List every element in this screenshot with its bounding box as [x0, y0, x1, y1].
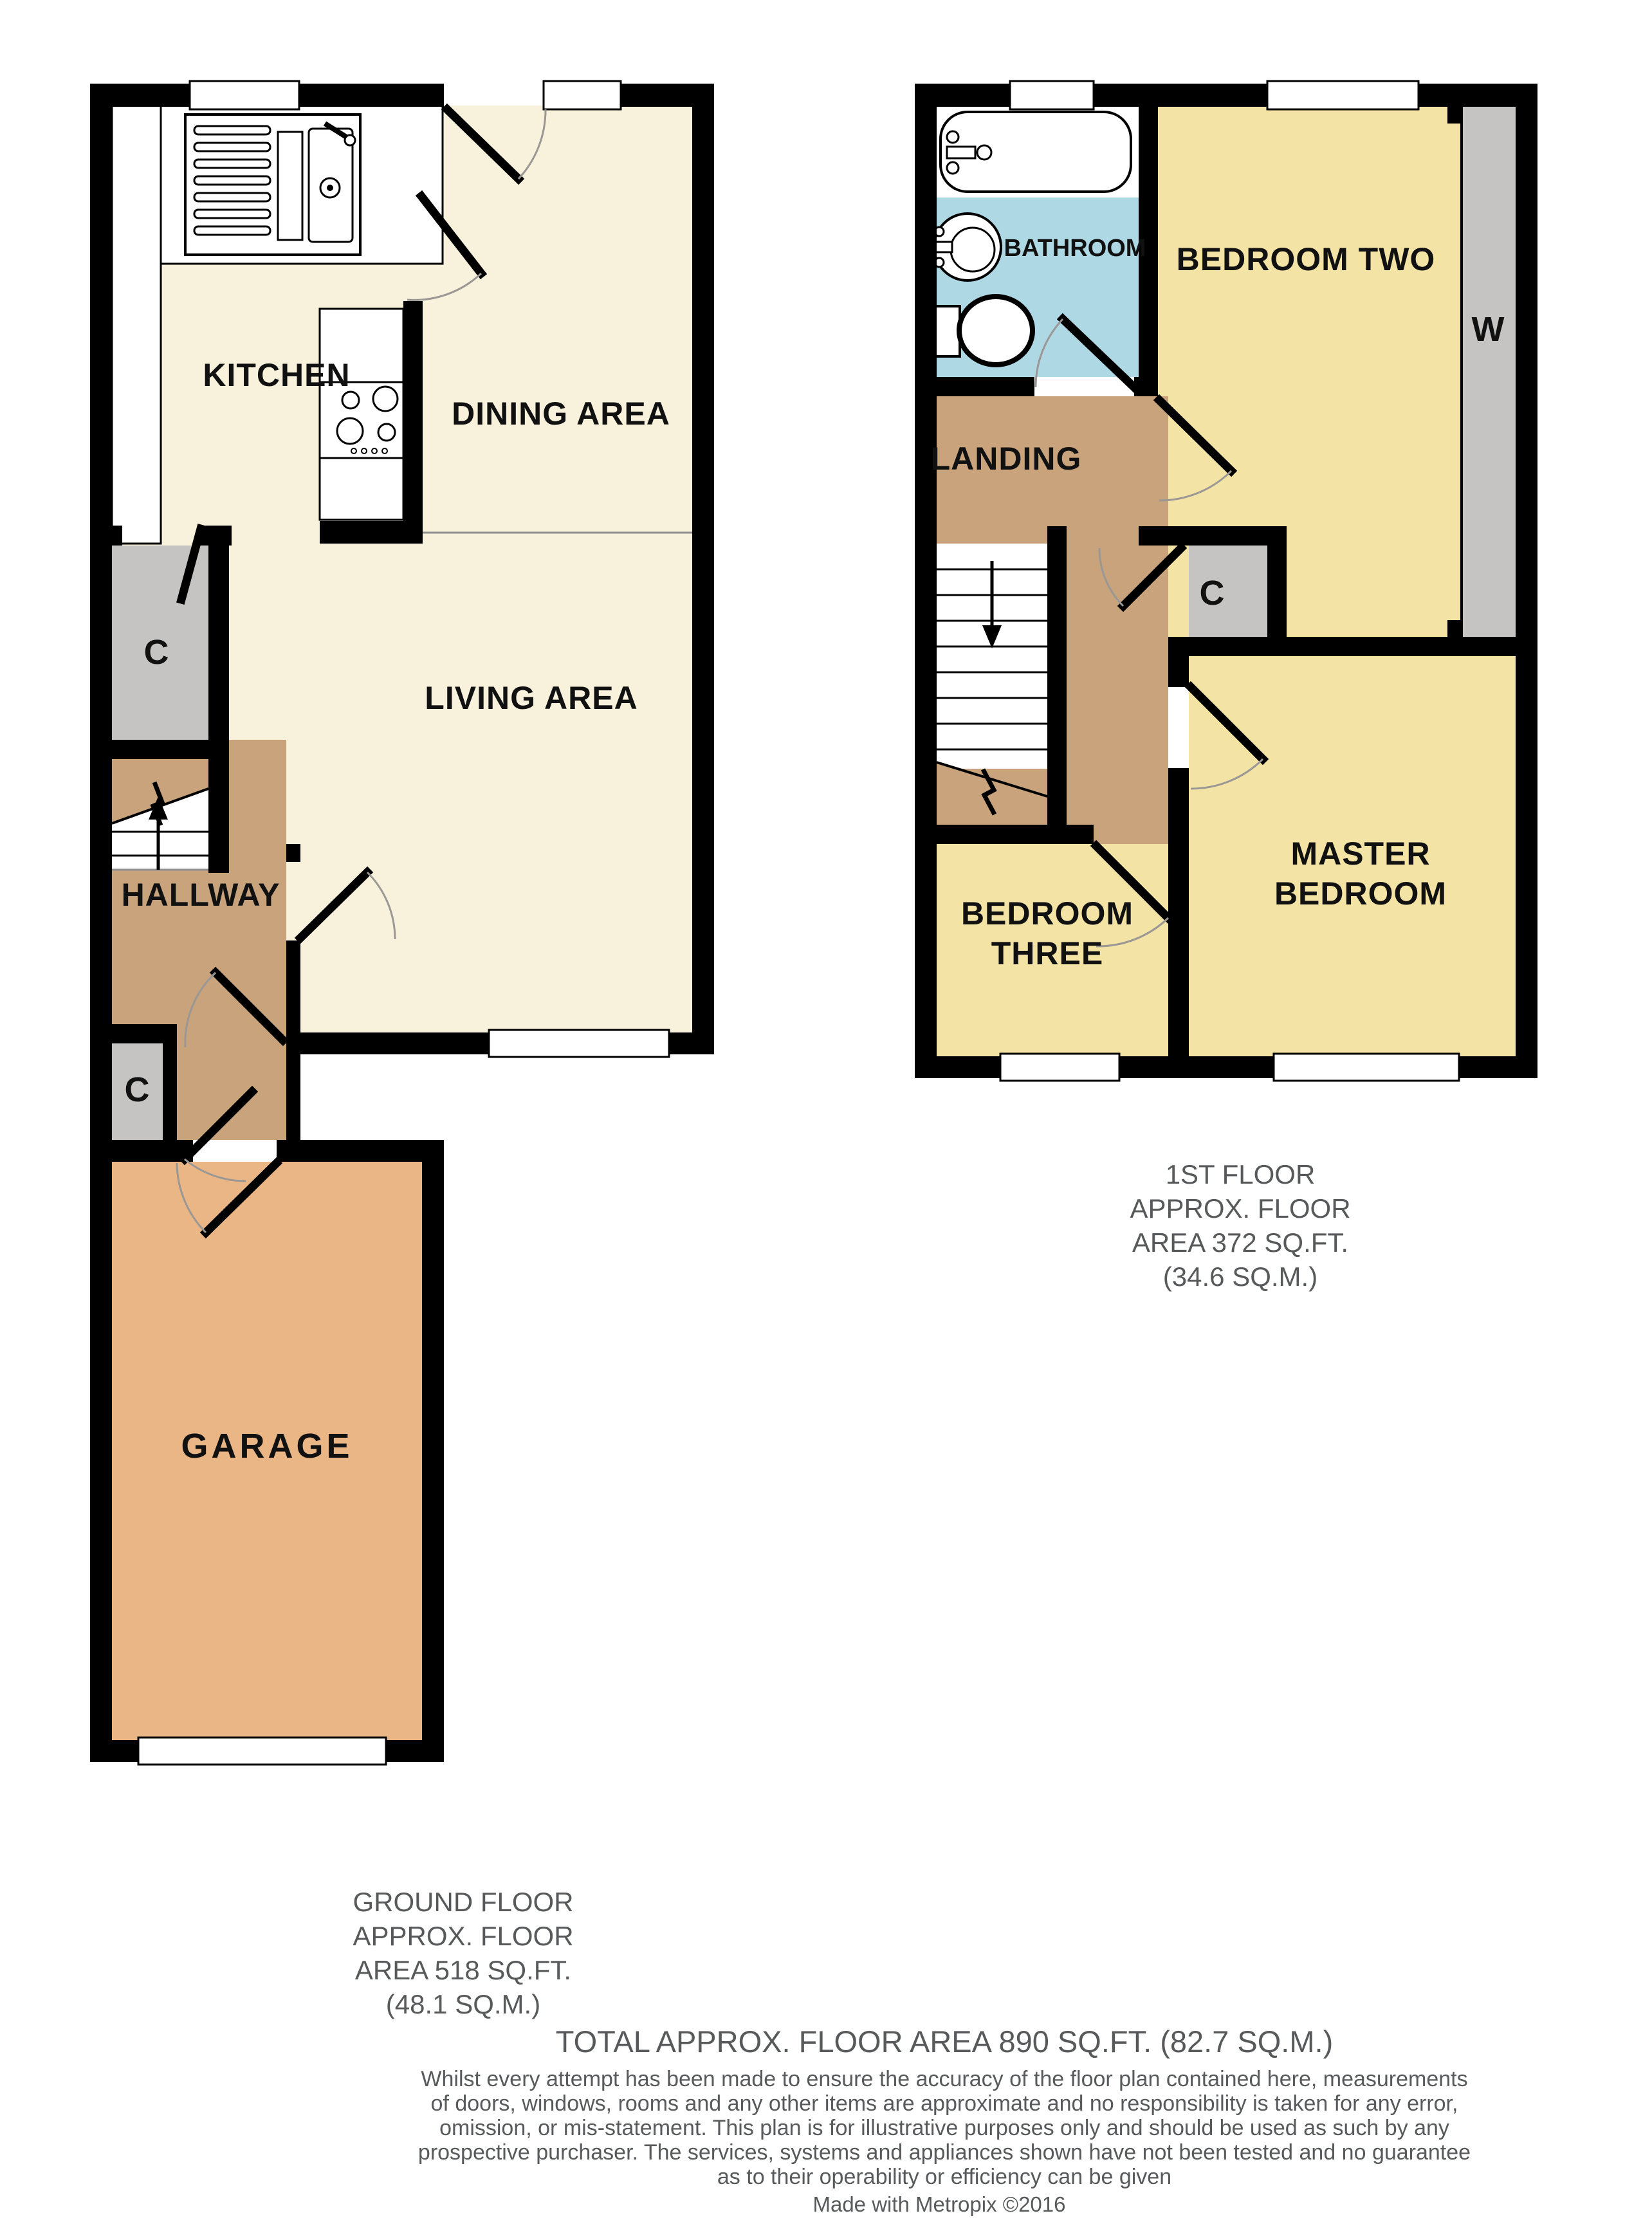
kitchen-label: KITCHEN — [203, 357, 350, 393]
disclaimer-line5: as to their operability or efficiency ca… — [717, 2165, 1171, 2189]
closet-first-label: C — [1200, 574, 1225, 612]
first-floor-caption-line3: AREA 372 SQ.FT. — [1132, 1227, 1348, 1258]
dining-area-label: DINING AREA — [452, 396, 670, 432]
kitchen-sink-icon — [185, 115, 360, 255]
master-bedroom-window — [1274, 1054, 1459, 1081]
bathroom-label: BATHROOM — [1004, 235, 1146, 262]
living-window — [489, 1030, 669, 1057]
first-floor-caption-line2: APPROX. FLOOR — [1130, 1193, 1350, 1224]
bedroom-two-label: BEDROOM TWO — [1177, 241, 1436, 277]
dining-window — [544, 81, 621, 109]
ground-floor-caption-line2: APPROX. FLOOR — [353, 1921, 573, 1951]
toilet-icon — [932, 297, 1032, 365]
first-floor-caption: 1ST FLOOR APPROX. FLOOR AREA 372 SQ.FT. … — [1130, 1159, 1350, 1292]
total-area-line: TOTAL APPROX. FLOOR AREA 890 SQ.FT. (82.… — [556, 2024, 1333, 2059]
hallway-label: HALLWAY — [122, 877, 280, 913]
bathroom-window — [1010, 81, 1094, 109]
ground-floor-caption-line4: (48.1 SQ.M.) — [386, 1989, 540, 2019]
garage-label: GARAGE — [181, 1427, 353, 1465]
closet-lower-label: C — [125, 1070, 150, 1109]
bedroom-two-window — [1267, 81, 1418, 109]
metropix-credit: Made with Metropix ©2016 — [812, 2192, 1065, 2216]
kitchen-window — [190, 81, 299, 109]
disclaimer-line3: omission, or mis-statement. This plan is… — [439, 2116, 1449, 2140]
hob-icon — [320, 382, 403, 458]
landing-label: LANDING — [931, 441, 1082, 477]
disclaimer-line2: of doors, windows, rooms and any other i… — [431, 2091, 1458, 2116]
sink-drainer — [194, 126, 270, 235]
disclaimer-line4: prospective purchaser. The services, sys… — [418, 2140, 1471, 2165]
first-floor-caption-line4: (34.6 SQ.M.) — [1163, 1261, 1317, 1292]
ground-floor-caption-line3: AREA 518 SQ.FT. — [355, 1955, 571, 1985]
ground-floor-caption-line1: GROUND FLOOR — [353, 1887, 573, 1917]
bedroom-three-label-line1: BEDROOM — [961, 895, 1133, 931]
floor-plan-canvas: KITCHEN DINING AREA LIVING AREA HALLWAY … — [0, 0, 1652, 2238]
living-area-label: LIVING AREA — [425, 680, 638, 716]
first-floor-caption-line1: 1ST FLOOR — [1166, 1159, 1316, 1189]
footer-text: TOTAL APPROX. FLOOR AREA 890 SQ.FT. (82.… — [418, 2024, 1471, 2216]
master-bedroom-label-line1: MASTER — [1290, 836, 1430, 872]
master-bedroom-label-line2: BEDROOM — [1274, 876, 1447, 912]
ground-floor-plan: KITCHEN DINING AREA LIVING AREA HALLWAY … — [90, 81, 714, 1765]
bedroom-three-window — [1000, 1054, 1119, 1081]
wardrobe-label: W — [1472, 310, 1505, 349]
disclaimer-line1: Whilst every attempt has been made to en… — [421, 2067, 1467, 2091]
bedroom-three-label-line2: THREE — [991, 935, 1103, 971]
floor-plan-page: KITCHEN DINING AREA LIVING AREA HALLWAY … — [0, 0, 1652, 2238]
wardrobe-floor — [1462, 107, 1516, 637]
garage-door-opening — [138, 1738, 386, 1765]
ground-floor-caption: GROUND FLOOR APPROX. FLOOR AREA 518 SQ.F… — [353, 1887, 573, 2019]
first-floor-plan: BATHROOM BEDROOM TWO W LANDING C MASTER … — [915, 81, 1537, 1081]
bathroom-sink-icon — [934, 214, 1001, 280]
closet-upper-label: C — [144, 633, 169, 672]
